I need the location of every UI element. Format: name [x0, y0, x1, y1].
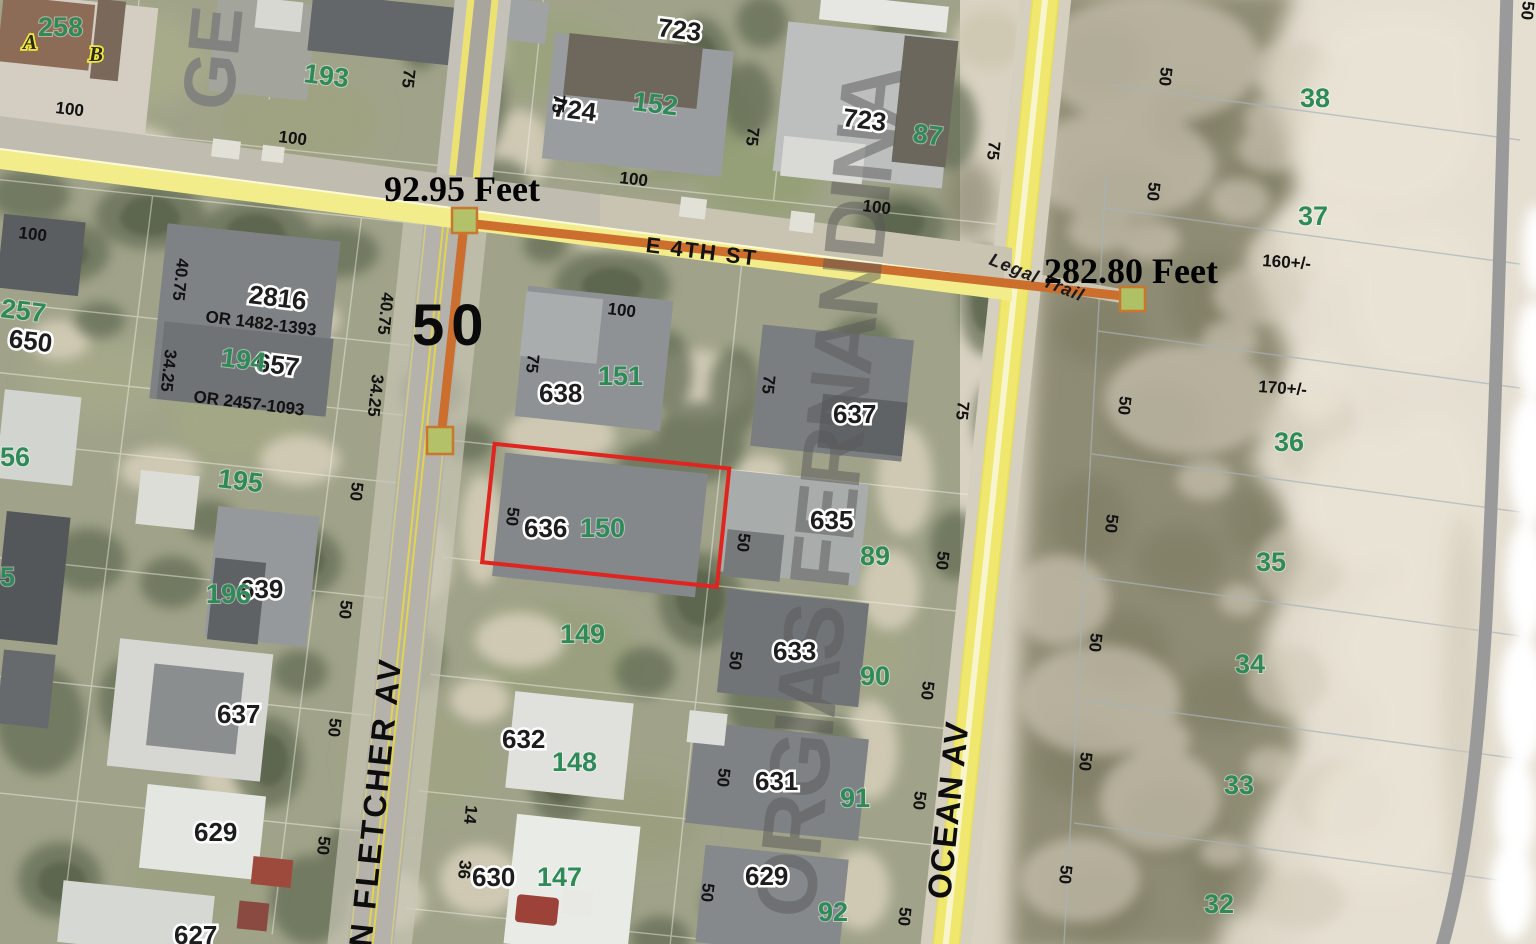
svg-text:75: 75: [758, 374, 779, 395]
svg-text:B: B: [88, 42, 103, 66]
svg-text:630: 630: [472, 862, 515, 892]
svg-text:50: 50: [1085, 632, 1106, 653]
svg-text:50: 50: [502, 506, 523, 527]
svg-text:36: 36: [454, 859, 475, 880]
svg-text:50: 50: [324, 717, 345, 738]
svg-text:50: 50: [733, 532, 754, 553]
svg-text:90: 90: [860, 661, 890, 691]
svg-text:100: 100: [278, 127, 308, 149]
svg-text:50: 50: [1155, 66, 1176, 87]
svg-text:152: 152: [631, 86, 679, 121]
svg-text:50: 50: [697, 882, 718, 903]
svg-text:170+/-: 170+/-: [1258, 377, 1308, 399]
svg-text:5: 5: [0, 562, 15, 592]
svg-text:148: 148: [552, 747, 597, 777]
svg-text:34: 34: [1235, 649, 1265, 679]
svg-text:50: 50: [894, 906, 915, 927]
svg-text:629: 629: [194, 817, 237, 847]
svg-text:632: 632: [502, 724, 545, 754]
svg-text:637: 637: [833, 399, 876, 429]
svg-text:100: 100: [619, 168, 649, 190]
svg-text:92.95 Feet: 92.95 Feet: [384, 169, 540, 209]
svg-text:193: 193: [302, 58, 350, 93]
svg-text:50: 50: [909, 790, 930, 811]
svg-text:100: 100: [18, 223, 48, 245]
svg-text:258: 258: [38, 12, 83, 42]
svg-text:100: 100: [607, 299, 637, 321]
svg-text:195: 195: [216, 463, 264, 498]
svg-text:50: 50: [713, 767, 734, 788]
svg-text:638: 638: [539, 378, 582, 408]
svg-text:37: 37: [1298, 201, 1328, 231]
svg-text:723: 723: [841, 102, 888, 137]
svg-text:75: 75: [742, 126, 763, 147]
svg-text:75: 75: [983, 140, 1004, 161]
svg-text:50: 50: [335, 599, 356, 620]
svg-text:75: 75: [522, 353, 543, 374]
svg-text:50: 50: [1517, 0, 1536, 21]
svg-text:50: 50: [346, 481, 367, 502]
svg-text:50: 50: [1114, 395, 1135, 416]
svg-text:50: 50: [725, 650, 746, 671]
svg-text:33: 33: [1224, 770, 1254, 800]
svg-text:151: 151: [598, 361, 643, 391]
svg-text:257: 257: [0, 293, 48, 328]
svg-text:A: A: [21, 30, 37, 54]
svg-text:637: 637: [217, 699, 260, 729]
svg-text:36: 36: [1274, 427, 1304, 457]
svg-text:100: 100: [862, 196, 892, 218]
svg-text:160+/-: 160+/-: [1262, 251, 1312, 273]
svg-text:50: 50: [1055, 864, 1076, 885]
svg-text:100: 100: [55, 98, 85, 120]
svg-text:650: 650: [7, 323, 54, 358]
svg-text:91: 91: [840, 783, 870, 813]
svg-text:629: 629: [745, 861, 788, 891]
svg-text:32: 32: [1204, 889, 1234, 919]
svg-text:75: 75: [548, 93, 569, 114]
svg-text:149: 149: [560, 619, 605, 649]
svg-text:150: 150: [580, 513, 625, 543]
svg-text:50: 50: [932, 550, 953, 571]
svg-text:87: 87: [911, 118, 944, 151]
svg-text:147: 147: [537, 862, 582, 892]
svg-text:627: 627: [174, 920, 217, 944]
svg-text:282.80 Feet: 282.80 Feet: [1044, 251, 1218, 291]
svg-text:50: 50: [1143, 181, 1164, 202]
svg-text:50: 50: [313, 835, 334, 856]
svg-text:196: 196: [206, 579, 251, 609]
svg-text:50: 50: [1101, 513, 1122, 534]
svg-text:633: 633: [773, 636, 816, 666]
svg-text:75: 75: [398, 68, 419, 89]
svg-text:75: 75: [952, 400, 973, 421]
svg-text:38: 38: [1300, 83, 1330, 113]
svg-text:50: 50: [412, 293, 491, 358]
svg-text:89: 89: [860, 541, 890, 571]
svg-text:GE: GE: [167, 4, 258, 113]
svg-text:50: 50: [917, 680, 938, 701]
svg-text:635: 635: [810, 505, 853, 535]
svg-text:723: 723: [656, 12, 703, 47]
svg-text:35: 35: [1256, 547, 1286, 577]
svg-text:636: 636: [524, 513, 567, 543]
svg-text:14: 14: [460, 804, 481, 825]
svg-text:56: 56: [0, 442, 30, 472]
svg-text:50: 50: [1075, 751, 1096, 772]
svg-text:631: 631: [755, 766, 798, 796]
svg-text:194: 194: [219, 342, 267, 377]
svg-text:92: 92: [818, 897, 848, 927]
